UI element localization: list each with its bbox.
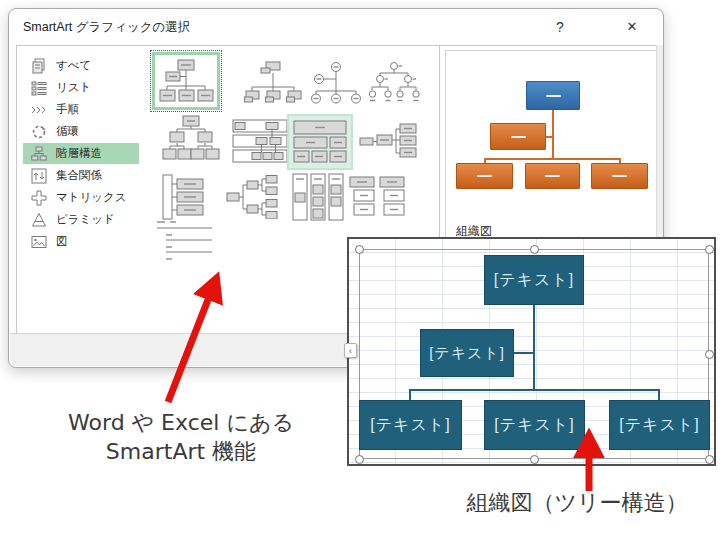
- sidebar-item-all[interactable]: すべて: [23, 55, 139, 76]
- list-icon: [31, 80, 47, 96]
- preview-top-node: [526, 81, 580, 110]
- sidebar-item-picture[interactable]: 図: [23, 231, 139, 252]
- process-icon: [31, 102, 47, 118]
- dialog-title: SmartArt グラフィックの選択: [23, 19, 190, 36]
- smartart-child-node[interactable]: [テキスト]: [609, 400, 710, 450]
- sidebar-item-list[interactable]: リスト: [23, 77, 139, 98]
- smartart-connector: [658, 389, 660, 400]
- thumbnail-hierarchy[interactable]: [160, 114, 222, 166]
- thumbnail-vertical-box-list[interactable]: [291, 172, 345, 222]
- sidebar-item-label: 図: [56, 234, 68, 249]
- sidebar-item-cycle[interactable]: 循環: [23, 121, 139, 142]
- preview-connector: [484, 158, 621, 160]
- thumbnail-name-and-title-organization-chart[interactable]: [242, 60, 304, 106]
- preview-child-node: [525, 163, 580, 189]
- preview-child-node: [591, 163, 648, 189]
- hierarchy-icon: [31, 146, 47, 162]
- text-pane-toggle-button[interactable]: ‹: [344, 343, 357, 358]
- all-icon: [31, 58, 47, 74]
- page: SmartArt グラフィックの選択 ? ✕ すべて リスト: [0, 0, 726, 533]
- sidebar-item-label: 集合関係: [56, 168, 102, 183]
- gallery-annotation-line1: Word や Excel にある: [40, 408, 322, 437]
- thumbnail-lineage-list[interactable]: [154, 217, 216, 265]
- resize-handle-bottom-center[interactable]: [530, 455, 539, 464]
- picture-icon: [31, 234, 47, 250]
- chart-annotation: 組織図（ツリー構造）: [427, 488, 726, 518]
- smartart-connector: [409, 389, 660, 391]
- sidebar-item-process[interactable]: 手順: [23, 99, 139, 120]
- thumbnail-vertical-organization-chart[interactable]: [157, 172, 207, 222]
- thumbnail-horizontal-hierarchy[interactable]: [224, 174, 286, 220]
- relationship-icon: [31, 168, 47, 184]
- smartart-connector: [533, 305, 535, 391]
- sidebar-item-label: すべて: [56, 58, 91, 73]
- resize-handle-top-left[interactable]: [355, 245, 364, 254]
- sidebar-item-relationship[interactable]: 集合関係: [23, 165, 139, 186]
- preview-child-node: [456, 163, 513, 189]
- preview-connector: [546, 136, 553, 138]
- resize-handle-middle-right[interactable]: [705, 350, 714, 359]
- matrix-icon: [31, 190, 47, 206]
- thumbnail-organization-chart[interactable]: [152, 52, 220, 110]
- help-button[interactable]: ?: [543, 15, 577, 39]
- gallery-annotation-line2: SmartArt 機能: [40, 437, 322, 466]
- thumbnail-labeled-hierarchy[interactable]: [230, 117, 290, 165]
- thumbnail-stacked-list[interactable]: [348, 174, 406, 220]
- close-button[interactable]: ✕: [615, 15, 649, 39]
- resize-handle-top-right[interactable]: [705, 245, 714, 254]
- thumbnail-circle-picture-hierarchy[interactable]: [368, 60, 424, 106]
- smartart-connector: [409, 389, 411, 400]
- thumbnail-horizontal-organization-chart[interactable]: [357, 120, 419, 164]
- category-sidebar: すべて リスト 手順 循環: [17, 46, 145, 334]
- sidebar-item-label: ピラミッド: [56, 212, 115, 227]
- smartart-child-node[interactable]: [テキスト]: [359, 400, 462, 450]
- sidebar-item-label: 循環: [56, 124, 79, 139]
- sidebar-item-label: 手順: [56, 102, 79, 117]
- sidebar-item-label: 階層構造: [56, 146, 102, 161]
- gallery-annotation: Word や Excel にある SmartArt 機能: [40, 408, 322, 466]
- sidebar-item-label: マトリックス: [56, 190, 127, 205]
- excel-worksheet-overlay: ‹ [テキスト] [テキスト] [テキスト] [テキスト] [テキスト]: [347, 237, 716, 466]
- pyramid-icon: [31, 212, 47, 228]
- cycle-icon: [31, 124, 47, 140]
- preview-assistant-node: [490, 123, 546, 150]
- smartart-assistant-node[interactable]: [テキスト]: [420, 329, 514, 377]
- sidebar-item-hierarchy[interactable]: 階層構造: [23, 143, 139, 164]
- smartart-top-node[interactable]: [テキスト]: [484, 255, 584, 305]
- thumbnail-table-hierarchy[interactable]: [287, 114, 353, 170]
- resize-handle-bottom-right[interactable]: [705, 455, 714, 464]
- dialog-titlebar[interactable]: SmartArt グラフィックの選択 ? ✕: [9, 9, 663, 45]
- preview-connector: [552, 110, 554, 158]
- thumbnail-half-circle-organization-chart[interactable]: [307, 60, 365, 106]
- sidebar-item-matrix[interactable]: マトリックス: [23, 187, 139, 208]
- smartart-child-node[interactable]: [テキスト]: [484, 400, 585, 450]
- resize-handle-top-center[interactable]: [530, 245, 539, 254]
- smartart-connector: [514, 352, 534, 354]
- sidebar-item-pyramid[interactable]: ピラミッド: [23, 209, 139, 230]
- resize-handle-bottom-left[interactable]: [355, 455, 364, 464]
- sidebar-item-label: リスト: [56, 80, 91, 95]
